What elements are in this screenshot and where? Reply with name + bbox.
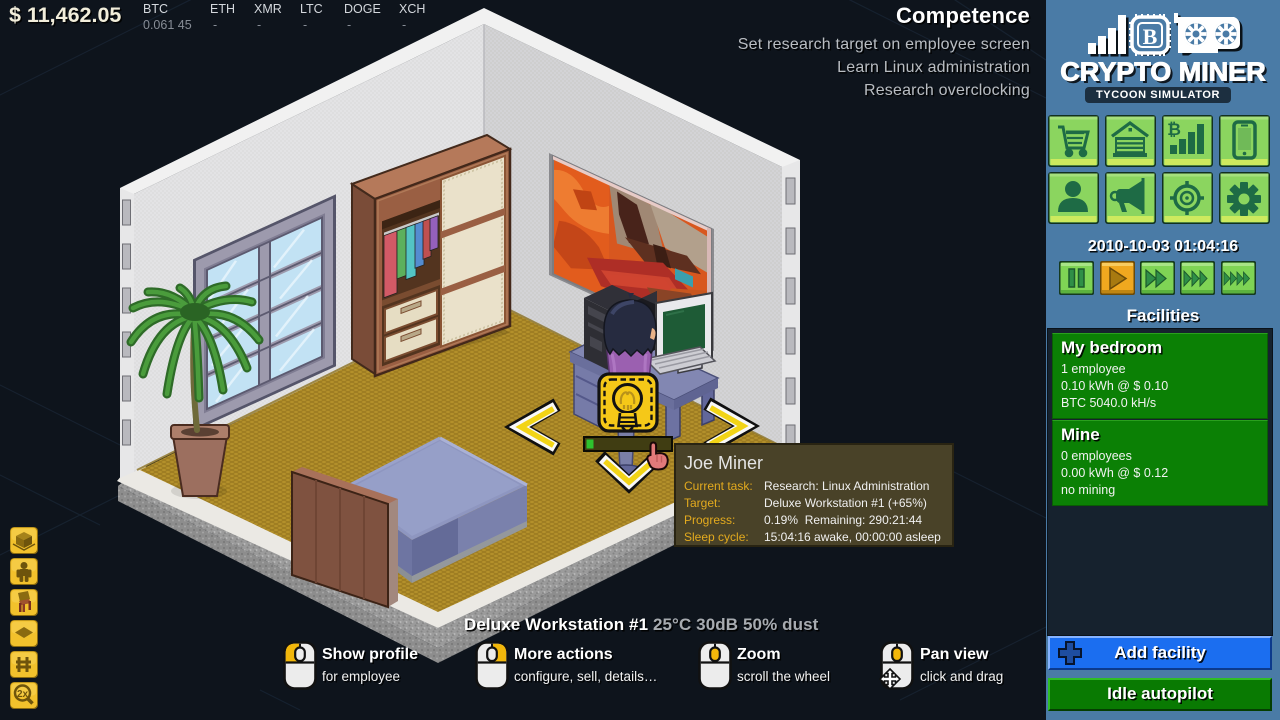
svg-text:₿: ₿ [1167,120,1181,139]
svg-text:2x: 2x [17,689,29,700]
svg-text:B: B [1143,24,1158,49]
